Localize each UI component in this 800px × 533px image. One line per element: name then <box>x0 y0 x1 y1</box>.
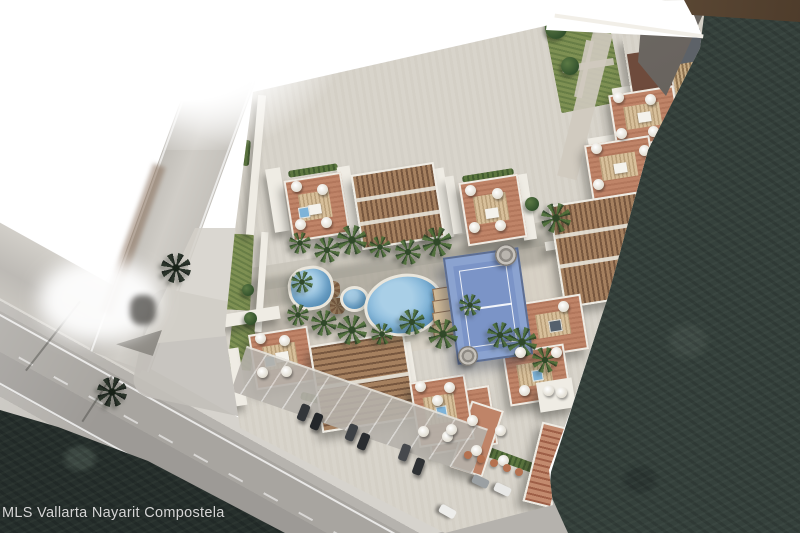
patio-umbrella <box>467 415 478 426</box>
planter-pot <box>490 459 498 467</box>
patio-umbrella <box>255 333 266 344</box>
roof-beam <box>360 210 440 226</box>
patio-umbrella <box>415 381 426 392</box>
patio-umbrella <box>257 367 268 378</box>
patio-umbrella <box>495 425 506 436</box>
planter-pot <box>477 455 485 463</box>
palm-tree <box>422 227 452 257</box>
palm-tree <box>399 309 425 335</box>
roadside-palm-tree <box>161 253 191 283</box>
patio-umbrella <box>446 424 457 435</box>
patio-umbrella <box>616 128 627 139</box>
daybed <box>637 111 651 123</box>
rooftop-spa <box>548 319 563 333</box>
palm-tree <box>337 315 367 345</box>
daybed <box>613 162 627 174</box>
patio-umbrella <box>279 335 290 346</box>
patio-umbrella <box>317 184 328 195</box>
roof-beam <box>356 186 436 202</box>
palm-tree <box>291 271 313 293</box>
patio-umbrella <box>591 143 602 154</box>
patio-umbrella <box>558 301 569 312</box>
palm-tree <box>395 239 421 265</box>
patio-umbrella <box>418 426 429 437</box>
palm-tree <box>428 319 458 349</box>
patio-umbrella <box>492 188 503 199</box>
patio-umbrella <box>495 220 506 231</box>
patio-umbrella <box>515 347 526 358</box>
palm-tree <box>459 294 481 316</box>
planter-pot <box>503 464 511 472</box>
patio-umbrella <box>593 179 604 190</box>
tree-shadow <box>130 295 156 325</box>
watermark-text: MLS Vallarta Nayarit Compostela <box>2 505 225 521</box>
planter-pot <box>515 468 523 476</box>
patio-umbrella <box>543 385 554 396</box>
palm-tree <box>289 232 311 254</box>
garden-tree <box>244 312 257 325</box>
circular-planter <box>495 244 517 266</box>
palm-tree <box>311 310 337 336</box>
roadside-palm-tree <box>97 377 127 407</box>
patio-umbrella <box>645 94 656 105</box>
daybed <box>485 207 499 219</box>
patio-umbrella <box>469 222 480 233</box>
garden-tree <box>525 197 539 211</box>
aerial-site-plan-rendering: MLS Vallarta Nayarit Compostela <box>0 0 800 533</box>
palm-tree <box>337 225 367 255</box>
palm-tree <box>369 236 391 258</box>
patio-umbrella <box>432 395 443 406</box>
patio-umbrella <box>556 387 567 398</box>
patio-umbrella <box>444 382 455 393</box>
patio-umbrella <box>295 219 306 230</box>
patio-umbrella <box>291 181 302 192</box>
patio-umbrella <box>465 185 476 196</box>
road-fade-overlay <box>60 0 340 150</box>
palm-tree <box>371 323 393 345</box>
garden-tree <box>561 57 579 75</box>
palm-tree <box>541 203 571 233</box>
circular-planter <box>458 346 478 366</box>
palm-tree <box>287 304 309 326</box>
patio-umbrella <box>321 217 332 228</box>
patio-umbrella <box>551 347 562 358</box>
patio-umbrella <box>281 366 292 377</box>
patio-umbrella <box>519 385 530 396</box>
garden-tree <box>242 284 254 296</box>
planter-pot <box>464 451 472 459</box>
patio-umbrella <box>613 92 624 103</box>
plunge-pool <box>298 206 311 219</box>
